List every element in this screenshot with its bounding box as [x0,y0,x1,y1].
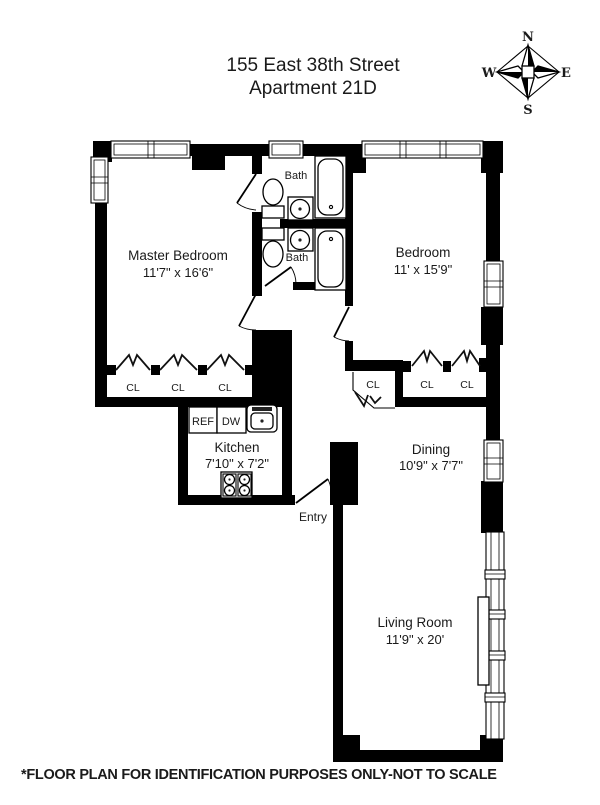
window-bedroom-right [484,261,503,307]
plan-title: 155 East 38th Street Apartment 21D [226,55,400,99]
bathtub-icon [315,228,346,290]
address-line: 155 East 38th Street [226,55,400,76]
fridge-label: REF [192,416,214,428]
closet-label: CL [126,382,140,394]
floor-plan-drawing: 155 East 38th Street Apartment 21D N S E… [0,0,600,800]
room-dims-living-room: 11'9" x 20' [386,632,445,647]
window-living-right-strip [478,532,505,739]
window-convector [478,597,489,685]
room-label-bath-2: Bath [286,252,309,264]
compass-e-label: E [561,66,571,81]
room-label-dining: Dining [412,442,450,457]
room-dims-bedroom: 11' x 15'9" [394,262,453,277]
room-dims-kitchen: 7'10" x 7'2" [205,456,269,471]
door-master-top [237,174,256,210]
sink-icon [288,228,313,251]
door-bedroom [334,307,349,341]
stove-icon [221,472,252,498]
kitchen-sink-icon [247,405,277,432]
floor-plan-page: 155 East 38th Street Apartment 21D N S E… [0,0,600,800]
closet-label: CL [420,379,434,391]
compass-center [522,66,534,78]
entry-label: Entry [299,510,327,524]
sink-icon [288,197,313,220]
window-bath-top [269,141,303,158]
window-master-top [111,141,190,158]
room-label-bedroom: Bedroom [396,245,451,260]
apartment-line: Apartment 21D [249,78,377,99]
toilet-icon [262,179,284,218]
closet-label: CL [460,379,474,391]
closet-doors-master [116,355,244,370]
disclaimer-text: *FLOOR PLAN FOR IDENTIFICATION PURPOSES … [21,767,497,783]
door-bath2 [265,267,296,286]
compass-s-label: S [523,103,532,118]
window-dining-right [484,440,503,482]
closet-label: CL [218,382,232,394]
toilet-icon [262,228,284,267]
door-master-hall [239,294,256,330]
room-dims-dining: 10'9" x 7'7" [399,458,463,473]
compass-n-label: N [522,30,534,45]
closet-label: CL [171,382,185,394]
room-label-bath-1: Bath [285,170,308,182]
room-label-living-room: Living Room [377,615,452,630]
compass-w-label: W [481,66,497,81]
window-bedroom-top [362,141,483,158]
room-label-master-bedroom: Master Bedroom [128,248,228,263]
bathtub-icon [315,156,346,218]
dishwasher-label: DW [222,416,241,428]
door-entry [296,479,332,503]
closet-label: CL [366,379,380,391]
compass-rose: N S E W [481,30,571,118]
room-label-kitchen: Kitchen [214,440,259,455]
room-dims-master-bedroom: 11'7" x 16'6" [143,265,214,280]
window-master-left [91,157,108,203]
